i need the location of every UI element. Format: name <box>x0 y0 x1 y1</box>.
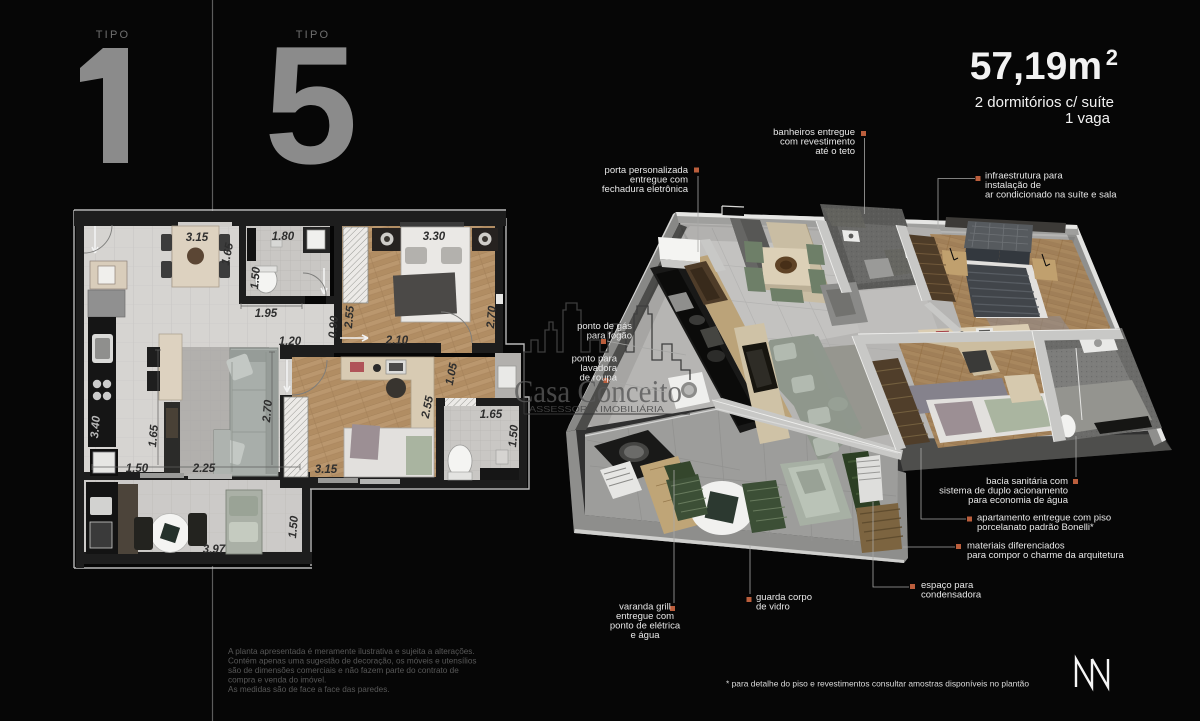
svg-text:são de dimensões comerciais e: são de dimensões comerciais e não fazem … <box>228 666 459 675</box>
svg-text:porcelanato padrão Bonelli*: porcelanato padrão Bonelli* <box>977 522 1094 533</box>
svg-text:1.50: 1.50 <box>507 424 521 448</box>
svg-text:fechadura eletrônica: fechadura eletrônica <box>602 184 689 195</box>
svg-text:ASSESSORIA IMOBILIÁRIA: ASSESSORIA IMOBILIÁRIA <box>529 404 664 414</box>
svg-text:de roupa: de roupa <box>579 373 617 384</box>
svg-text:1.80: 1.80 <box>272 231 295 243</box>
svg-text:1.20: 1.20 <box>279 336 302 348</box>
svg-text:3.40: 3.40 <box>89 415 103 439</box>
svg-text:2.55: 2.55 <box>343 305 357 330</box>
svg-text:3.15: 3.15 <box>315 464 338 476</box>
svg-text:2.10: 2.10 <box>385 335 409 347</box>
svg-text:compra e venda do imóvel.: compra e venda do imóvel. <box>228 676 326 685</box>
svg-text:até o teto: até o teto <box>815 146 855 157</box>
svg-text:1.95: 1.95 <box>255 308 278 320</box>
svg-text:A planta apresentada é meramen: A planta apresentada é meramente ilustra… <box>228 647 475 656</box>
svg-text:1.50: 1.50 <box>287 515 301 539</box>
svg-text:1.65: 1.65 <box>147 424 161 448</box>
svg-text:0.90: 0.90 <box>327 315 341 339</box>
svg-text:2.70: 2.70 <box>261 399 275 424</box>
svg-text:2: 2 <box>1106 45 1118 70</box>
svg-text:3.97: 3.97 <box>203 544 226 556</box>
svg-text:para fogão: para fogão <box>587 331 632 342</box>
svg-text:1.50: 1.50 <box>126 463 149 475</box>
svg-text:condensadora: condensadora <box>921 590 982 601</box>
svg-text:3.30: 3.30 <box>423 231 446 243</box>
svg-text:2.70: 2.70 <box>485 305 499 330</box>
svg-text:para compor o charme da arquit: para compor o charme da arquitetura <box>967 550 1125 561</box>
svg-text:57,19m: 57,19m <box>970 45 1102 88</box>
svg-text:2 dormitórios c/ suíte: 2 dormitórios c/ suíte <box>975 94 1114 111</box>
svg-text:1 vaga: 1 vaga <box>1065 110 1111 127</box>
svg-text:1.65: 1.65 <box>480 409 503 421</box>
svg-text:TIPO: TIPO <box>96 29 130 41</box>
svg-text:2.25: 2.25 <box>192 463 216 475</box>
svg-text:de vidro: de vidro <box>756 602 790 613</box>
svg-text:5: 5 <box>264 11 357 199</box>
svg-text:* para detalhe do piso e reves: * para detalhe do piso e revestimentos c… <box>726 680 1030 689</box>
svg-text:para economia de água: para economia de água <box>968 495 1069 506</box>
svg-text:1.50: 1.50 <box>249 266 263 290</box>
svg-text:3.15: 3.15 <box>186 232 209 244</box>
svg-text:ar condicionado na suíte e sal: ar condicionado na suíte e sala <box>985 190 1117 201</box>
svg-text:Contém apenas uma sugestão de: Contém apenas uma sugestão de decoração,… <box>228 657 477 666</box>
svg-text:e água: e água <box>630 630 660 641</box>
svg-text:As medidas são de face a face: As medidas são de face a face das parede… <box>228 685 390 694</box>
